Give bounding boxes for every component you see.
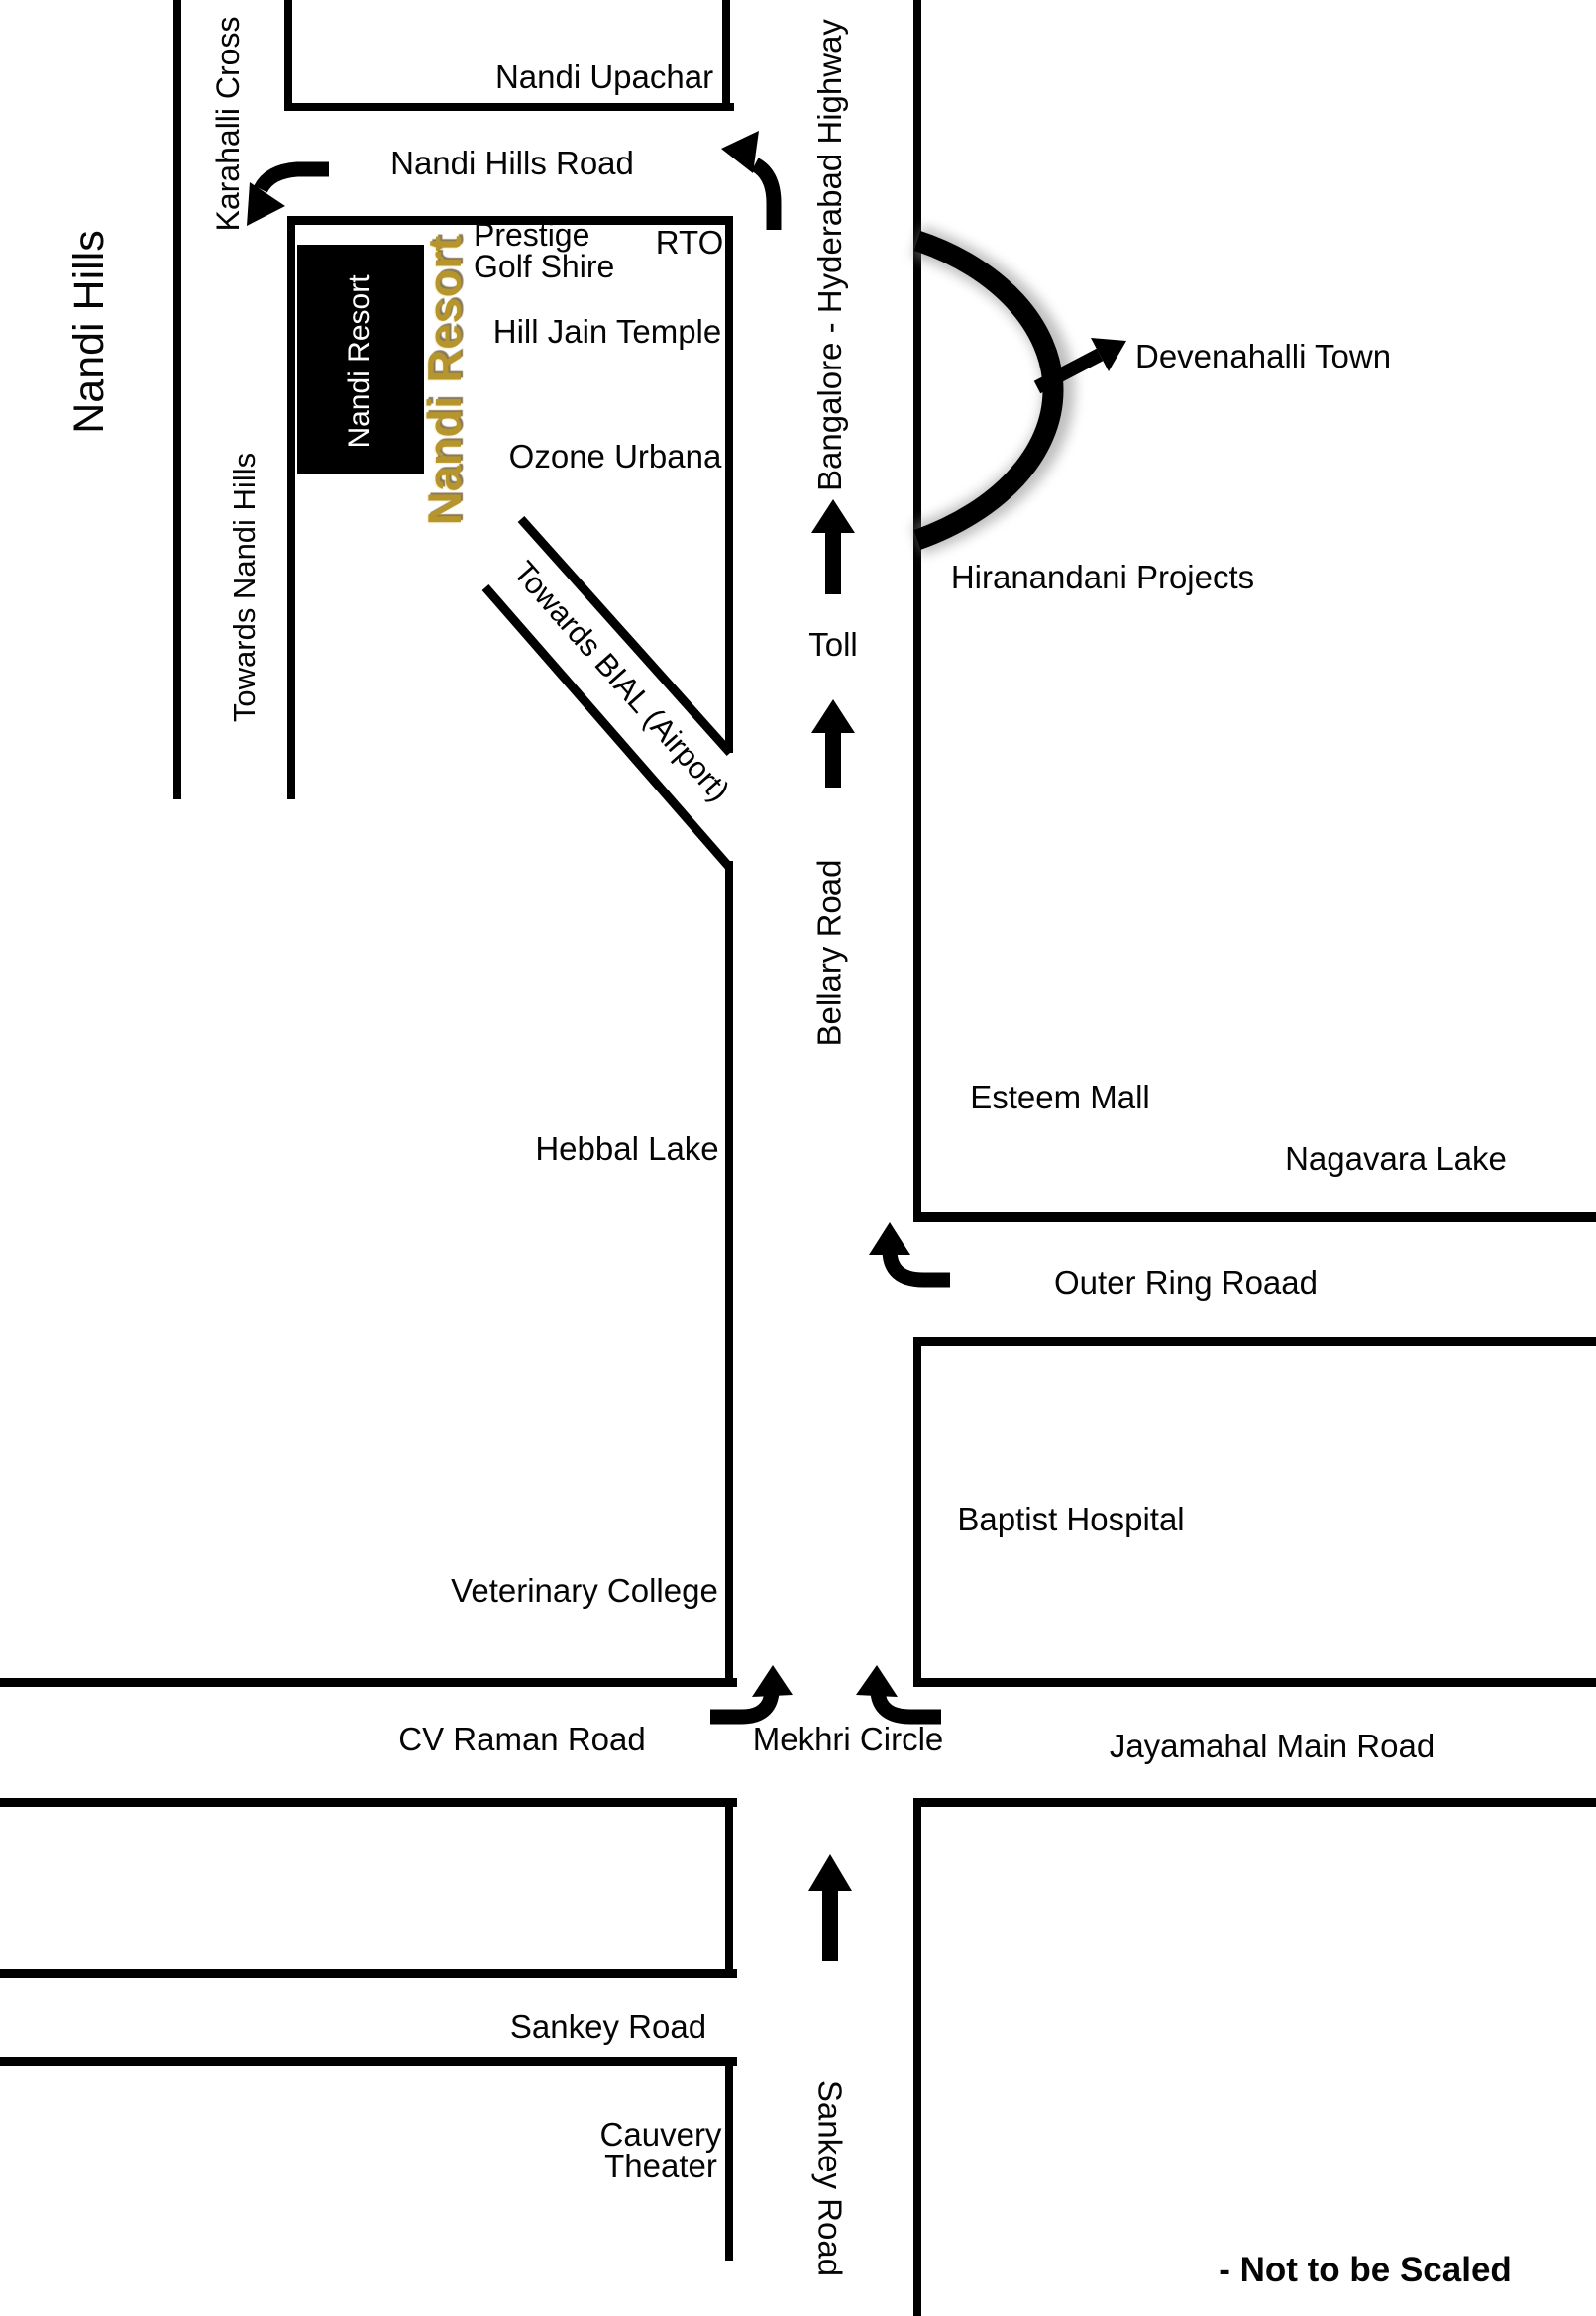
mekhri-right-turn-arrow-head [856, 1665, 898, 1697]
left-turn-arrow-highway-head [721, 131, 759, 173]
prestige-label: Prestige [474, 219, 589, 252]
hebbal-lake-label: Hebbal Lake [528, 1129, 726, 1169]
nandi-hills-road-label: Nandi Hills Road [373, 144, 651, 183]
hill-jain-temple-label: Hill Jain Temple [479, 312, 736, 352]
rto-label: RTO [650, 223, 729, 263]
devenahalli-town-label: Devenahalli Town [1135, 337, 1391, 376]
highway-up-arrow1-head [811, 499, 855, 533]
esteem-mall-label: Esteem Mall [961, 1078, 1159, 1117]
highway-up-arrow2-head [811, 699, 855, 733]
outer-ring-turn-arrow-head [869, 1222, 910, 1255]
left-turn-arrow-highway [755, 164, 774, 230]
bial-road-upper-line [521, 519, 730, 753]
toll-label: Toll [794, 625, 873, 665]
nandi-hills-label: Nandi Hills [69, 218, 109, 446]
bial-road-lower-line [485, 587, 729, 867]
bangalore-hyderabad-highway-label: Bangalore - Hyderabad Highway [810, 26, 850, 491]
sankey-road-horizontal-label: Sankey Road [504, 2007, 712, 2047]
baptist-hospital-label: Baptist Hospital [947, 1500, 1195, 1539]
cv-raman-road-label: CV Raman Road [393, 1720, 651, 1759]
outer-ring-road-label: Outer Ring Roaad [1047, 1263, 1325, 1303]
not-to-scale-note: - Not to be Scaled [1197, 2251, 1534, 2290]
route-map: Nandi Hills Karahalli Cross Towards Nand… [0, 0, 1596, 2316]
sankey-road-vertical-label: Sankey Road [810, 2067, 850, 2290]
cauvery-theater-label-line1: Cauvery [582, 2118, 740, 2151]
sankey-up-arrow-head [808, 1854, 852, 1891]
veterinary-college-label: Veterinary College [441, 1571, 728, 1611]
bellary-road-label: Bellary Road [810, 847, 850, 1060]
nandi-resort-gold-label: Nandi Resort [417, 227, 473, 534]
nagavara-lake-label: Nagavara Lake [1277, 1139, 1515, 1179]
left-turn-arrow-karahalli [261, 169, 329, 189]
karahalli-cross-label: Karahalli Cross [208, 10, 248, 238]
nandi-upachar-label: Nandi Upachar [476, 57, 733, 97]
nandi-resort-block-label: Nandi Resort [340, 258, 379, 466]
ozone-urbana-label: Ozone Urbana [496, 437, 734, 476]
golf-shire-label: Golf Shire [474, 251, 614, 283]
mekhri-circle-label: Mekhri Circle [744, 1720, 952, 1759]
hiranandani-projects-label: Hiranandani Projects [939, 558, 1266, 597]
jayamahal-main-road-label: Jayamahal Main Road [1099, 1727, 1445, 1766]
devenahalli-loop [917, 241, 1053, 540]
towards-nandi-hills-label: Towards Nandi Hills [225, 439, 265, 736]
cauvery-theater-label-line2: Theater [582, 2150, 740, 2182]
mekhri-left-turn-arrow-head [752, 1665, 793, 1697]
